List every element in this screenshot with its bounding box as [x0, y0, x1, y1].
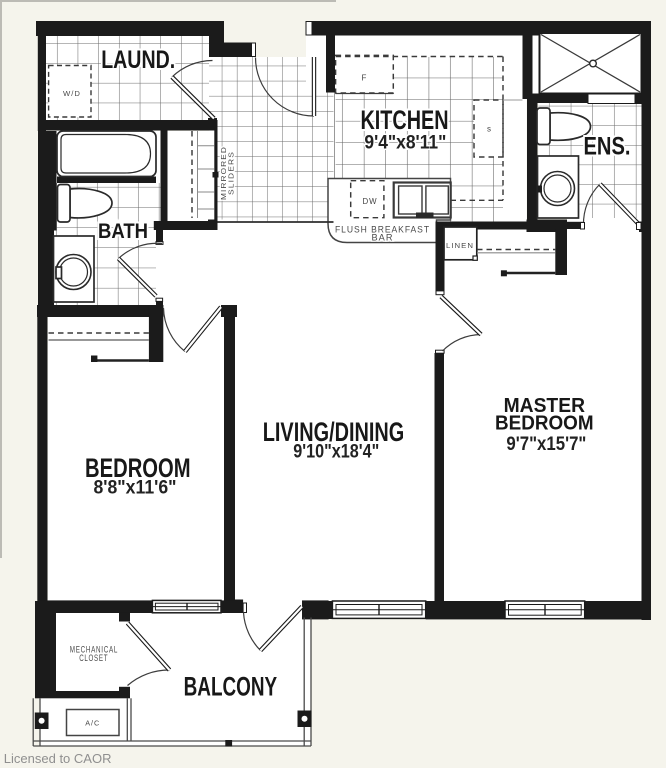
svg-text:SLIDERS: SLIDERS — [227, 151, 236, 195]
svg-text:LINEN: LINEN — [446, 241, 474, 250]
svg-text:DW: DW — [363, 196, 378, 206]
svg-text:Licensed to CAOR: Licensed to CAOR — [4, 751, 112, 766]
svg-text:9'4"x8'11": 9'4"x8'11" — [364, 132, 446, 154]
svg-text:BEDROOM: BEDROOM — [495, 412, 594, 434]
svg-text:s: s — [487, 125, 491, 134]
svg-text:BALCONY: BALCONY — [184, 672, 278, 702]
svg-text:9'7"x15'7": 9'7"x15'7" — [506, 433, 586, 455]
svg-text:F: F — [362, 74, 367, 83]
svg-text:ENS.: ENS. — [584, 133, 631, 161]
svg-text:9'10"x18'4": 9'10"x18'4" — [293, 441, 379, 463]
svg-text:KITCHEN: KITCHEN — [361, 105, 449, 135]
svg-text:A/C: A/C — [85, 719, 100, 728]
svg-text:CLOSET: CLOSET — [79, 653, 108, 663]
svg-text:8'8"x11'6": 8'8"x11'6" — [94, 477, 177, 499]
svg-text:BAR: BAR — [372, 233, 394, 243]
svg-text:LAUND.: LAUND. — [101, 46, 175, 74]
svg-text:W/D: W/D — [63, 89, 81, 98]
svg-text:BATH: BATH — [98, 220, 148, 243]
